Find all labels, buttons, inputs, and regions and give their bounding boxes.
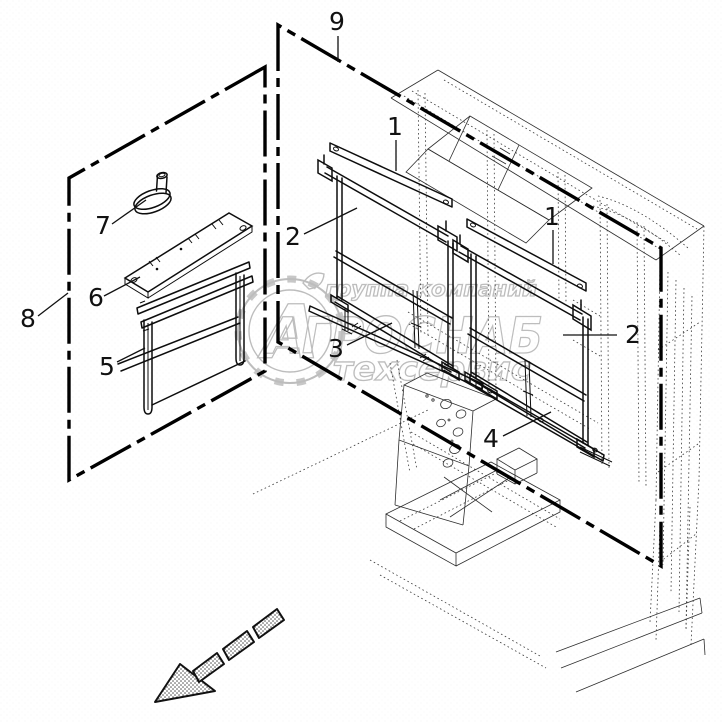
callout-5: 5 [99,352,115,381]
callout-3: 3 [328,334,344,363]
diagram-canvas: А группа компаний АГРОСНАБ техсервис [0,0,723,723]
watermark-service-line: техсервис [333,349,531,388]
callout-1-right: 1 [544,202,560,231]
watermark-group-line: группа компаний [325,277,537,301]
callout-7: 7 [95,211,111,240]
callout-1-left: 1 [387,112,403,141]
callout-8: 8 [20,304,36,333]
callout-6: 6 [88,283,104,312]
parts-diagram-page: А группа компаний АГРОСНАБ техсервис [0,0,723,723]
callout-4: 4 [483,424,499,453]
callout-2-right: 2 [625,320,641,349]
callout-9: 9 [329,7,345,36]
callout-2-left: 2 [285,222,301,251]
